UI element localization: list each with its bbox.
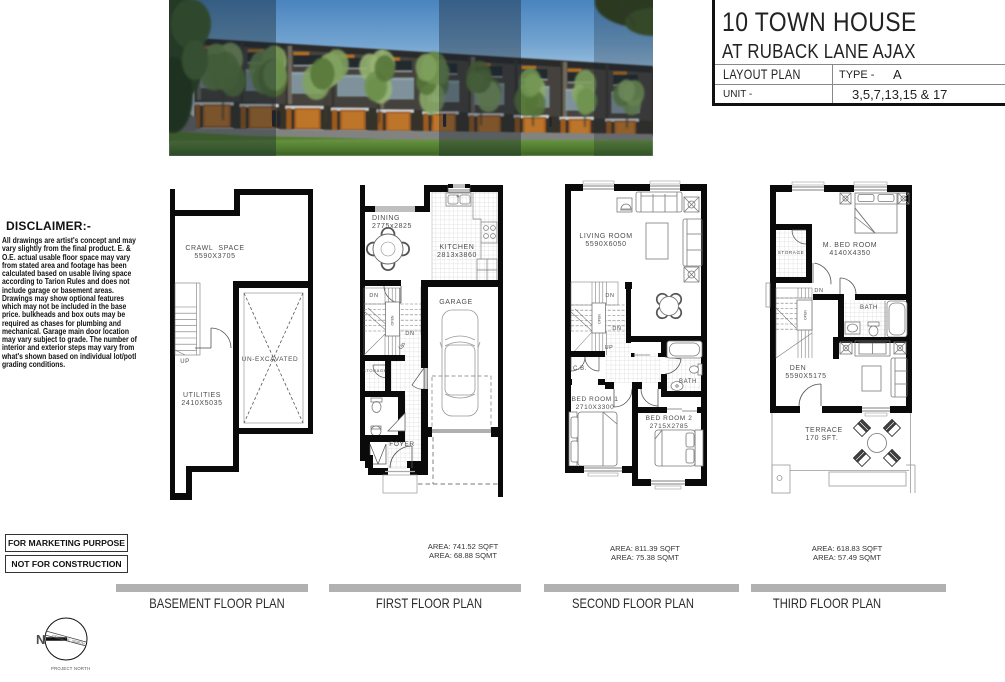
svg-text:DN: DN bbox=[814, 288, 823, 294]
svg-text:5590X3705: 5590X3705 bbox=[194, 253, 235, 260]
svg-text:BED ROOM 2: BED ROOM 2 bbox=[646, 415, 693, 422]
svg-text:FOYER: FOYER bbox=[389, 441, 414, 448]
svg-text:GARAGE: GARAGE bbox=[439, 299, 473, 306]
svg-text:BATH: BATH bbox=[860, 305, 878, 311]
svg-text:KITCHEN: KITCHEN bbox=[440, 244, 475, 251]
svg-text:TERRACE: TERRACE bbox=[805, 427, 843, 434]
svg-text:OPEN: OPEN bbox=[804, 310, 808, 320]
svg-text:BED ROOM 1: BED ROOM 1 bbox=[572, 396, 619, 403]
svg-text:2813x3860: 2813x3860 bbox=[437, 252, 477, 259]
svg-text:5590X5175: 5590X5175 bbox=[785, 373, 826, 380]
svg-text:CRAWL SPACE: CRAWL SPACE bbox=[185, 245, 244, 252]
svg-text:4140X4350: 4140X4350 bbox=[829, 250, 870, 257]
svg-text:DN: DN bbox=[405, 331, 414, 337]
svg-text:170 SFT.: 170 SFT. bbox=[806, 435, 839, 442]
svg-text:M. BED ROOM: M. BED ROOM bbox=[823, 242, 877, 249]
svg-text:OPEN: OPEN bbox=[598, 314, 602, 324]
svg-text:N: N bbox=[36, 632, 45, 647]
svg-text:DINING: DINING bbox=[372, 215, 400, 222]
svg-text:DN: DN bbox=[605, 293, 614, 299]
svg-text:C.B.: C.B. bbox=[573, 366, 587, 372]
svg-text:OPEN: OPEN bbox=[391, 315, 395, 325]
svg-text:DN: DN bbox=[612, 326, 621, 332]
svg-text:UP: UP bbox=[180, 359, 190, 365]
svg-text:2715X2785: 2715X2785 bbox=[650, 423, 689, 430]
svg-text:2710X3300: 2710X3300 bbox=[576, 404, 615, 411]
svg-text:UN-EXCAVATED: UN-EXCAVATED bbox=[242, 356, 299, 363]
svg-text:DN: DN bbox=[369, 293, 378, 299]
svg-text:UTILITIES: UTILITIES bbox=[183, 392, 221, 399]
svg-text:5590X6050: 5590X6050 bbox=[585, 241, 626, 248]
svg-text:PROJECT NORTH: PROJECT NORTH bbox=[51, 666, 90, 671]
svg-text:STORAGE: STORAGE bbox=[778, 250, 805, 255]
svg-text:LIVING ROOM: LIVING ROOM bbox=[579, 233, 632, 240]
svg-text:2410X5035: 2410X5035 bbox=[181, 400, 222, 407]
svg-text:BATH: BATH bbox=[679, 379, 697, 385]
svg-text:UP: UP bbox=[605, 345, 614, 351]
svg-text:DEN: DEN bbox=[790, 365, 807, 372]
